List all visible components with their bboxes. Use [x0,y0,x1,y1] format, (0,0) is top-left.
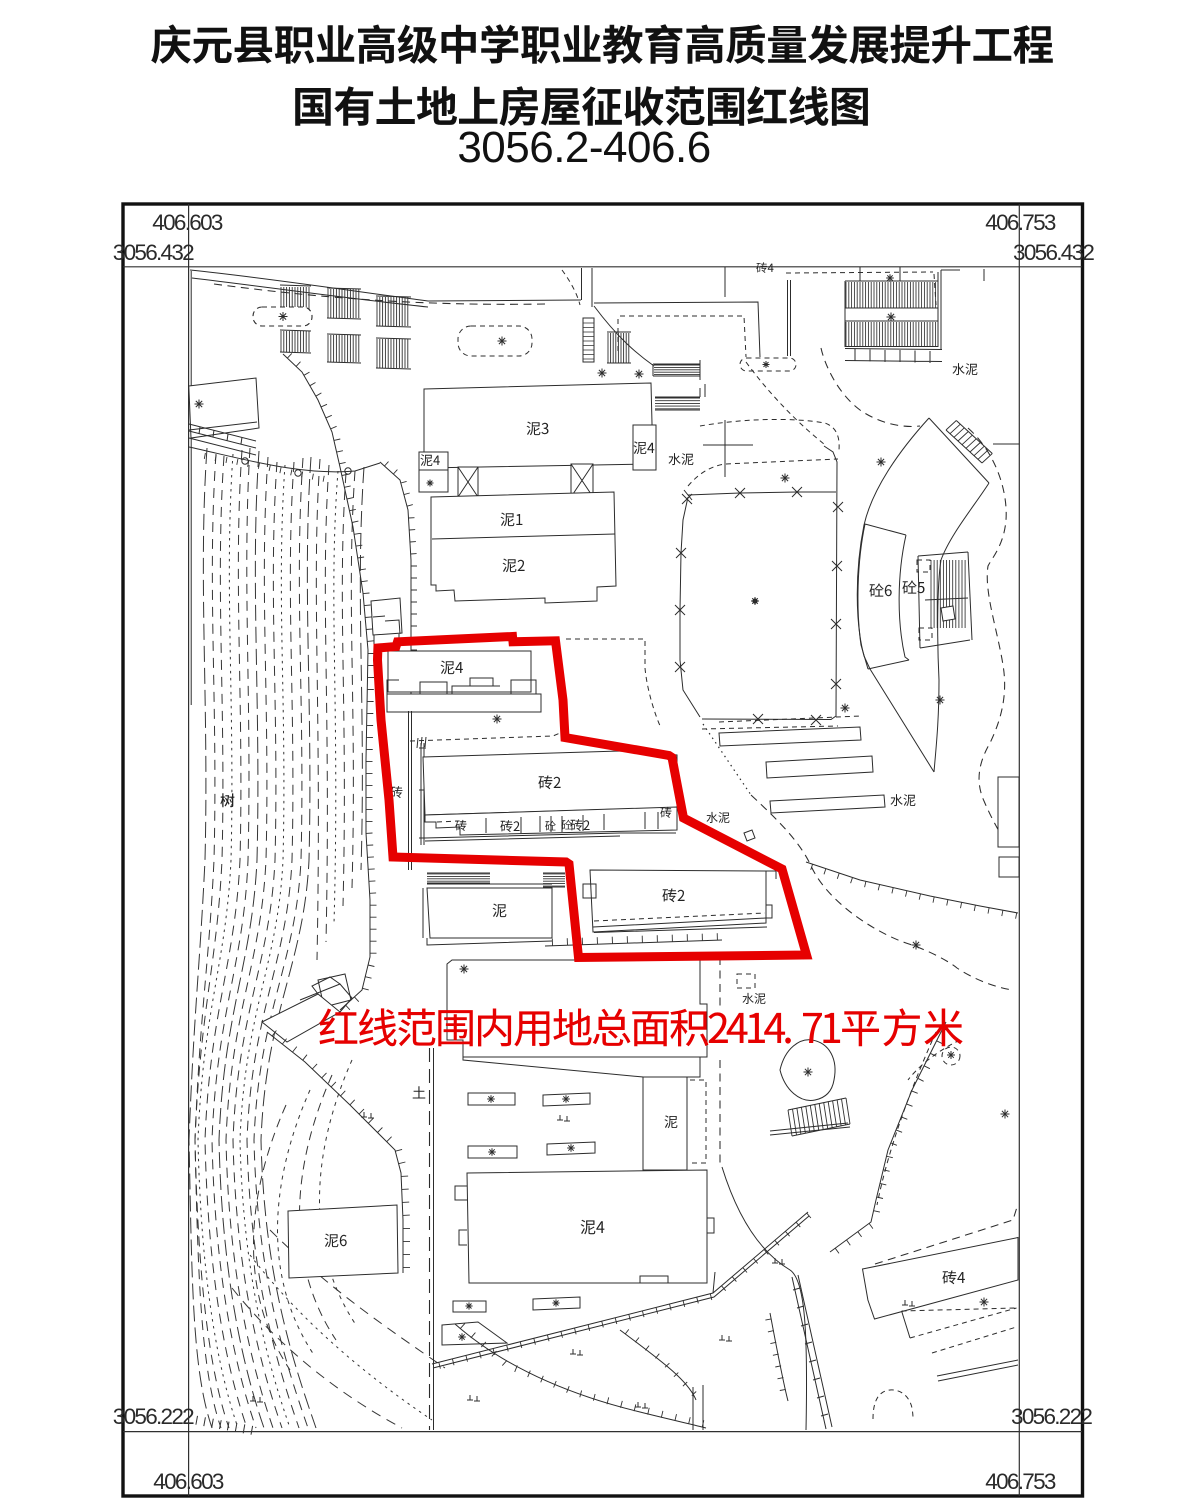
svg-text:3056.222: 3056.222 [113,1404,194,1429]
svg-text:3056.222: 3056.222 [1011,1404,1092,1429]
svg-text:406.753: 406.753 [985,1469,1056,1494]
svg-text:3056.432: 3056.432 [113,240,194,265]
svg-text:406.603: 406.603 [152,210,223,235]
svg-text:406.753: 406.753 [985,210,1056,235]
svg-text:406.603: 406.603 [153,1469,224,1494]
svg-text:3056.2-406.6: 3056.2-406.6 [457,123,710,172]
svg-text:3056.432: 3056.432 [1013,240,1094,265]
